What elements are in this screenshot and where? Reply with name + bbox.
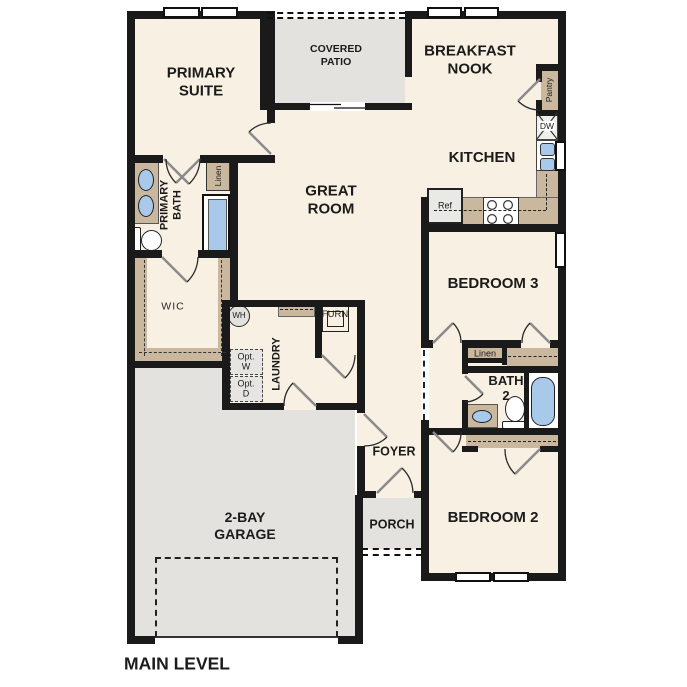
wall — [127, 361, 222, 368]
wall — [421, 224, 566, 232]
closet-rod-line — [508, 356, 557, 357]
wall — [421, 428, 566, 435]
wall — [358, 491, 376, 498]
hall-linen-label: Linen — [474, 349, 496, 360]
plan-title: MAIN LEVEL — [124, 653, 230, 674]
bedroom2-label: BEDROOM 2 — [448, 509, 539, 527]
wic-shelf-line — [139, 352, 226, 353]
doorway-primary-suite — [267, 123, 275, 155]
window — [555, 141, 566, 171]
stove — [483, 197, 519, 226]
primary-toilet-bowl — [141, 230, 162, 251]
wall — [222, 300, 365, 307]
patio-edge-dashed — [267, 12, 405, 19]
covered-patio-label: COVERED PATIO — [310, 43, 362, 69]
bath2-sink — [472, 410, 492, 423]
doorway-garage — [357, 413, 365, 446]
wall — [316, 403, 365, 410]
wall — [355, 495, 363, 644]
wic-shelf-bottom — [135, 348, 230, 361]
water-heater-label: WH — [232, 311, 245, 321]
wic-shelf-left — [135, 256, 147, 360]
wall — [260, 11, 267, 110]
window — [455, 572, 491, 582]
window — [493, 572, 529, 582]
hall-opening-dashed — [423, 350, 425, 420]
window — [464, 7, 499, 18]
window — [427, 7, 462, 18]
wall — [524, 373, 529, 428]
wall — [230, 155, 238, 307]
wall — [421, 224, 429, 348]
laundry-label: LAUNDRY — [270, 337, 283, 390]
wall — [222, 300, 230, 410]
wall — [338, 636, 363, 644]
wall — [462, 366, 566, 373]
window — [163, 7, 200, 18]
cabinet-line — [280, 309, 313, 310]
primary-shower-pan — [208, 199, 227, 252]
wic-shelf-line — [144, 260, 145, 356]
foyer-label: FOYER — [372, 444, 415, 459]
primary-bath-label: PRIMARY BATH — [159, 180, 186, 230]
great-room-label: GREAT ROOM — [305, 183, 356, 220]
garage-door-dashed — [155, 557, 338, 637]
refrigerator-label: Ref — [438, 201, 452, 212]
wall — [540, 446, 558, 452]
wall — [127, 11, 135, 644]
wall — [260, 103, 310, 110]
doorway-patio — [405, 77, 412, 103]
wall — [365, 103, 412, 110]
bedroom3-closet — [507, 348, 558, 366]
primary-linen-label: Linen — [213, 166, 223, 187]
garage-label: 2-BAY GARAGE — [214, 509, 275, 543]
closet-rod-line — [468, 441, 556, 442]
wall — [462, 340, 521, 348]
bath2-tub — [531, 377, 555, 426]
dishwasher-label: DW — [539, 121, 555, 131]
wall — [558, 11, 566, 581]
wall — [536, 110, 566, 116]
wall — [414, 491, 423, 498]
wall — [127, 636, 155, 644]
wall — [200, 155, 275, 163]
wall — [127, 250, 162, 258]
pantry-label: Pantry — [544, 78, 554, 103]
wic-shelf-line — [221, 260, 222, 356]
breakfast-nook-label: BREAKFAST NOOK — [424, 43, 516, 80]
bath2-label: BATH 2 — [488, 374, 523, 404]
primary-suite-label: PRIMARY SUITE — [167, 65, 236, 102]
wall — [462, 446, 478, 452]
kitchen-sink-basin — [540, 158, 555, 171]
primary-sink — [138, 195, 154, 217]
optional-washer-label: Opt. W — [237, 352, 254, 373]
doorway-front — [376, 491, 414, 498]
wall — [127, 155, 163, 163]
bedroom3-label: BEDROOM 3 — [448, 275, 539, 293]
wall — [198, 250, 236, 258]
porch-edge-dashed — [362, 548, 422, 556]
kitchen-sink-basin — [540, 143, 555, 156]
window — [201, 7, 238, 18]
wall — [550, 340, 566, 348]
wall — [357, 300, 365, 413]
furnace-label: FURN — [322, 309, 348, 321]
wall — [421, 340, 433, 348]
window — [555, 232, 566, 268]
porch-label: PORCH — [369, 517, 414, 532]
wall — [405, 11, 412, 77]
wall — [222, 403, 284, 410]
counter-line — [546, 174, 547, 210]
wic-label: WIC — [161, 301, 184, 314]
primary-sink — [138, 169, 154, 191]
wall — [536, 64, 566, 71]
sliding-glass-door — [310, 102, 365, 111]
floor-plan: PRIMARY SUITE COVERED PATIO BREAKFAST NO… — [0, 0, 687, 687]
kitchen-label: KITCHEN — [449, 149, 516, 167]
wall — [421, 420, 429, 581]
optional-dryer-label: Opt. D — [237, 379, 254, 400]
doorway-wic — [162, 250, 198, 258]
doorway-primary-bath — [163, 155, 200, 163]
